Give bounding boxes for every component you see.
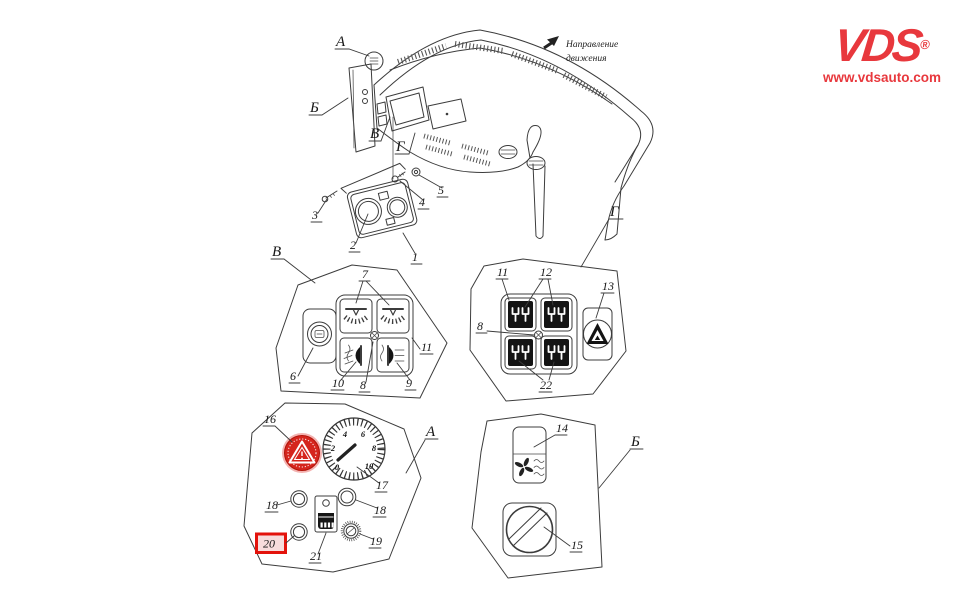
instrument-cluster-drawing <box>322 162 420 239</box>
detail-view-a: А 0 2 4 6 8 10 <box>244 403 438 572</box>
rear-fog-icon <box>381 345 405 365</box>
callout-2: 2 <box>350 238 356 252</box>
dashboard-overview-drawing <box>349 30 653 240</box>
callout-11: 11 <box>421 340 432 354</box>
screw-icon <box>371 332 379 340</box>
direction-note-line2: движения <box>566 53 607 64</box>
svg-text:4: 4 <box>342 429 347 439</box>
label-b: Б <box>309 100 319 116</box>
hazard-button-red-drawing <box>282 433 322 473</box>
callout-15: 15 <box>571 538 583 552</box>
callout-11g: 11 <box>497 265 508 279</box>
highlight-box-20: 20 <box>257 534 295 553</box>
callout-8g: 8 <box>477 319 483 333</box>
callout-20: 20 <box>263 537 275 551</box>
front-fog-icon <box>344 345 361 365</box>
callout-8: 8 <box>360 378 366 392</box>
callout-18-left: 18 <box>266 498 278 512</box>
detail-view-b: Б 14 15 <box>472 414 643 578</box>
vds-logo: VDS® www.vdsauto.com <box>812 22 952 85</box>
callout-18-right: 18 <box>374 503 386 517</box>
wiper-washer-icon <box>345 309 367 322</box>
svg-text:10: 10 <box>365 461 374 471</box>
detail-view-g: Г 11 12 <box>470 204 626 401</box>
detail-g-label: Г <box>609 204 620 220</box>
callout-6: 6 <box>290 369 296 383</box>
direction-note: Направление движения <box>544 36 618 64</box>
button-19-drawing <box>342 522 360 540</box>
tachometer-gauge: 0 2 4 6 8 10 <box>323 418 385 480</box>
detail-a-label: А <box>425 424 436 440</box>
callout-16: 16 <box>264 412 276 426</box>
fan-switch-drawing <box>511 427 546 483</box>
screw-icon <box>535 331 543 339</box>
button-20-drawing <box>291 524 307 540</box>
svg-text:2: 2 <box>330 443 336 453</box>
callout-5: 5 <box>438 183 444 197</box>
button-18-left-drawing <box>291 491 307 507</box>
switch-block-v <box>336 295 413 376</box>
switch-block-g <box>501 294 577 374</box>
vds-logo-mark: VDS® <box>810 22 955 68</box>
side-vent-detail <box>365 52 383 70</box>
callout-17: 17 <box>376 478 389 492</box>
detail-v-label: В <box>272 244 281 260</box>
direction-note-line1: Направление <box>565 40 618 50</box>
catalog-diagram-page: А Б В Г 1 2 3 4 5 Направление движения В <box>0 0 960 611</box>
switch-unit-21-drawing <box>315 496 337 532</box>
callout-21: 21 <box>310 549 322 563</box>
vds-website-url: www.vdsauto.com <box>812 70 952 85</box>
label-g: Г <box>395 139 406 155</box>
callout-22: 22 <box>540 378 552 392</box>
label-a: А <box>335 34 346 50</box>
lighter-panel-drawing <box>303 309 336 363</box>
label-v: В <box>370 126 379 142</box>
fan-icon <box>511 454 538 481</box>
diagram-art: А Б В Г 1 2 3 4 5 Направление движения В <box>0 0 960 611</box>
button-18-right-drawing <box>338 488 356 506</box>
detail-view-v: В 7 6 10 8 9 <box>271 244 447 398</box>
registered-trademark-icon: ® <box>919 37 930 52</box>
callout-14: 14 <box>556 421 568 435</box>
detail-b-label: Б <box>630 434 640 450</box>
wiper-washer-icon <box>382 309 404 322</box>
callout-12: 12 <box>540 265 552 279</box>
hazard-switch-drawing <box>583 308 612 360</box>
callout-3: 3 <box>311 208 318 222</box>
callout-7: 7 <box>362 267 369 281</box>
callout-13: 13 <box>602 279 614 293</box>
screw-3-drawing <box>322 191 337 202</box>
callout-19: 19 <box>370 534 382 548</box>
callout-1: 1 <box>412 250 418 264</box>
